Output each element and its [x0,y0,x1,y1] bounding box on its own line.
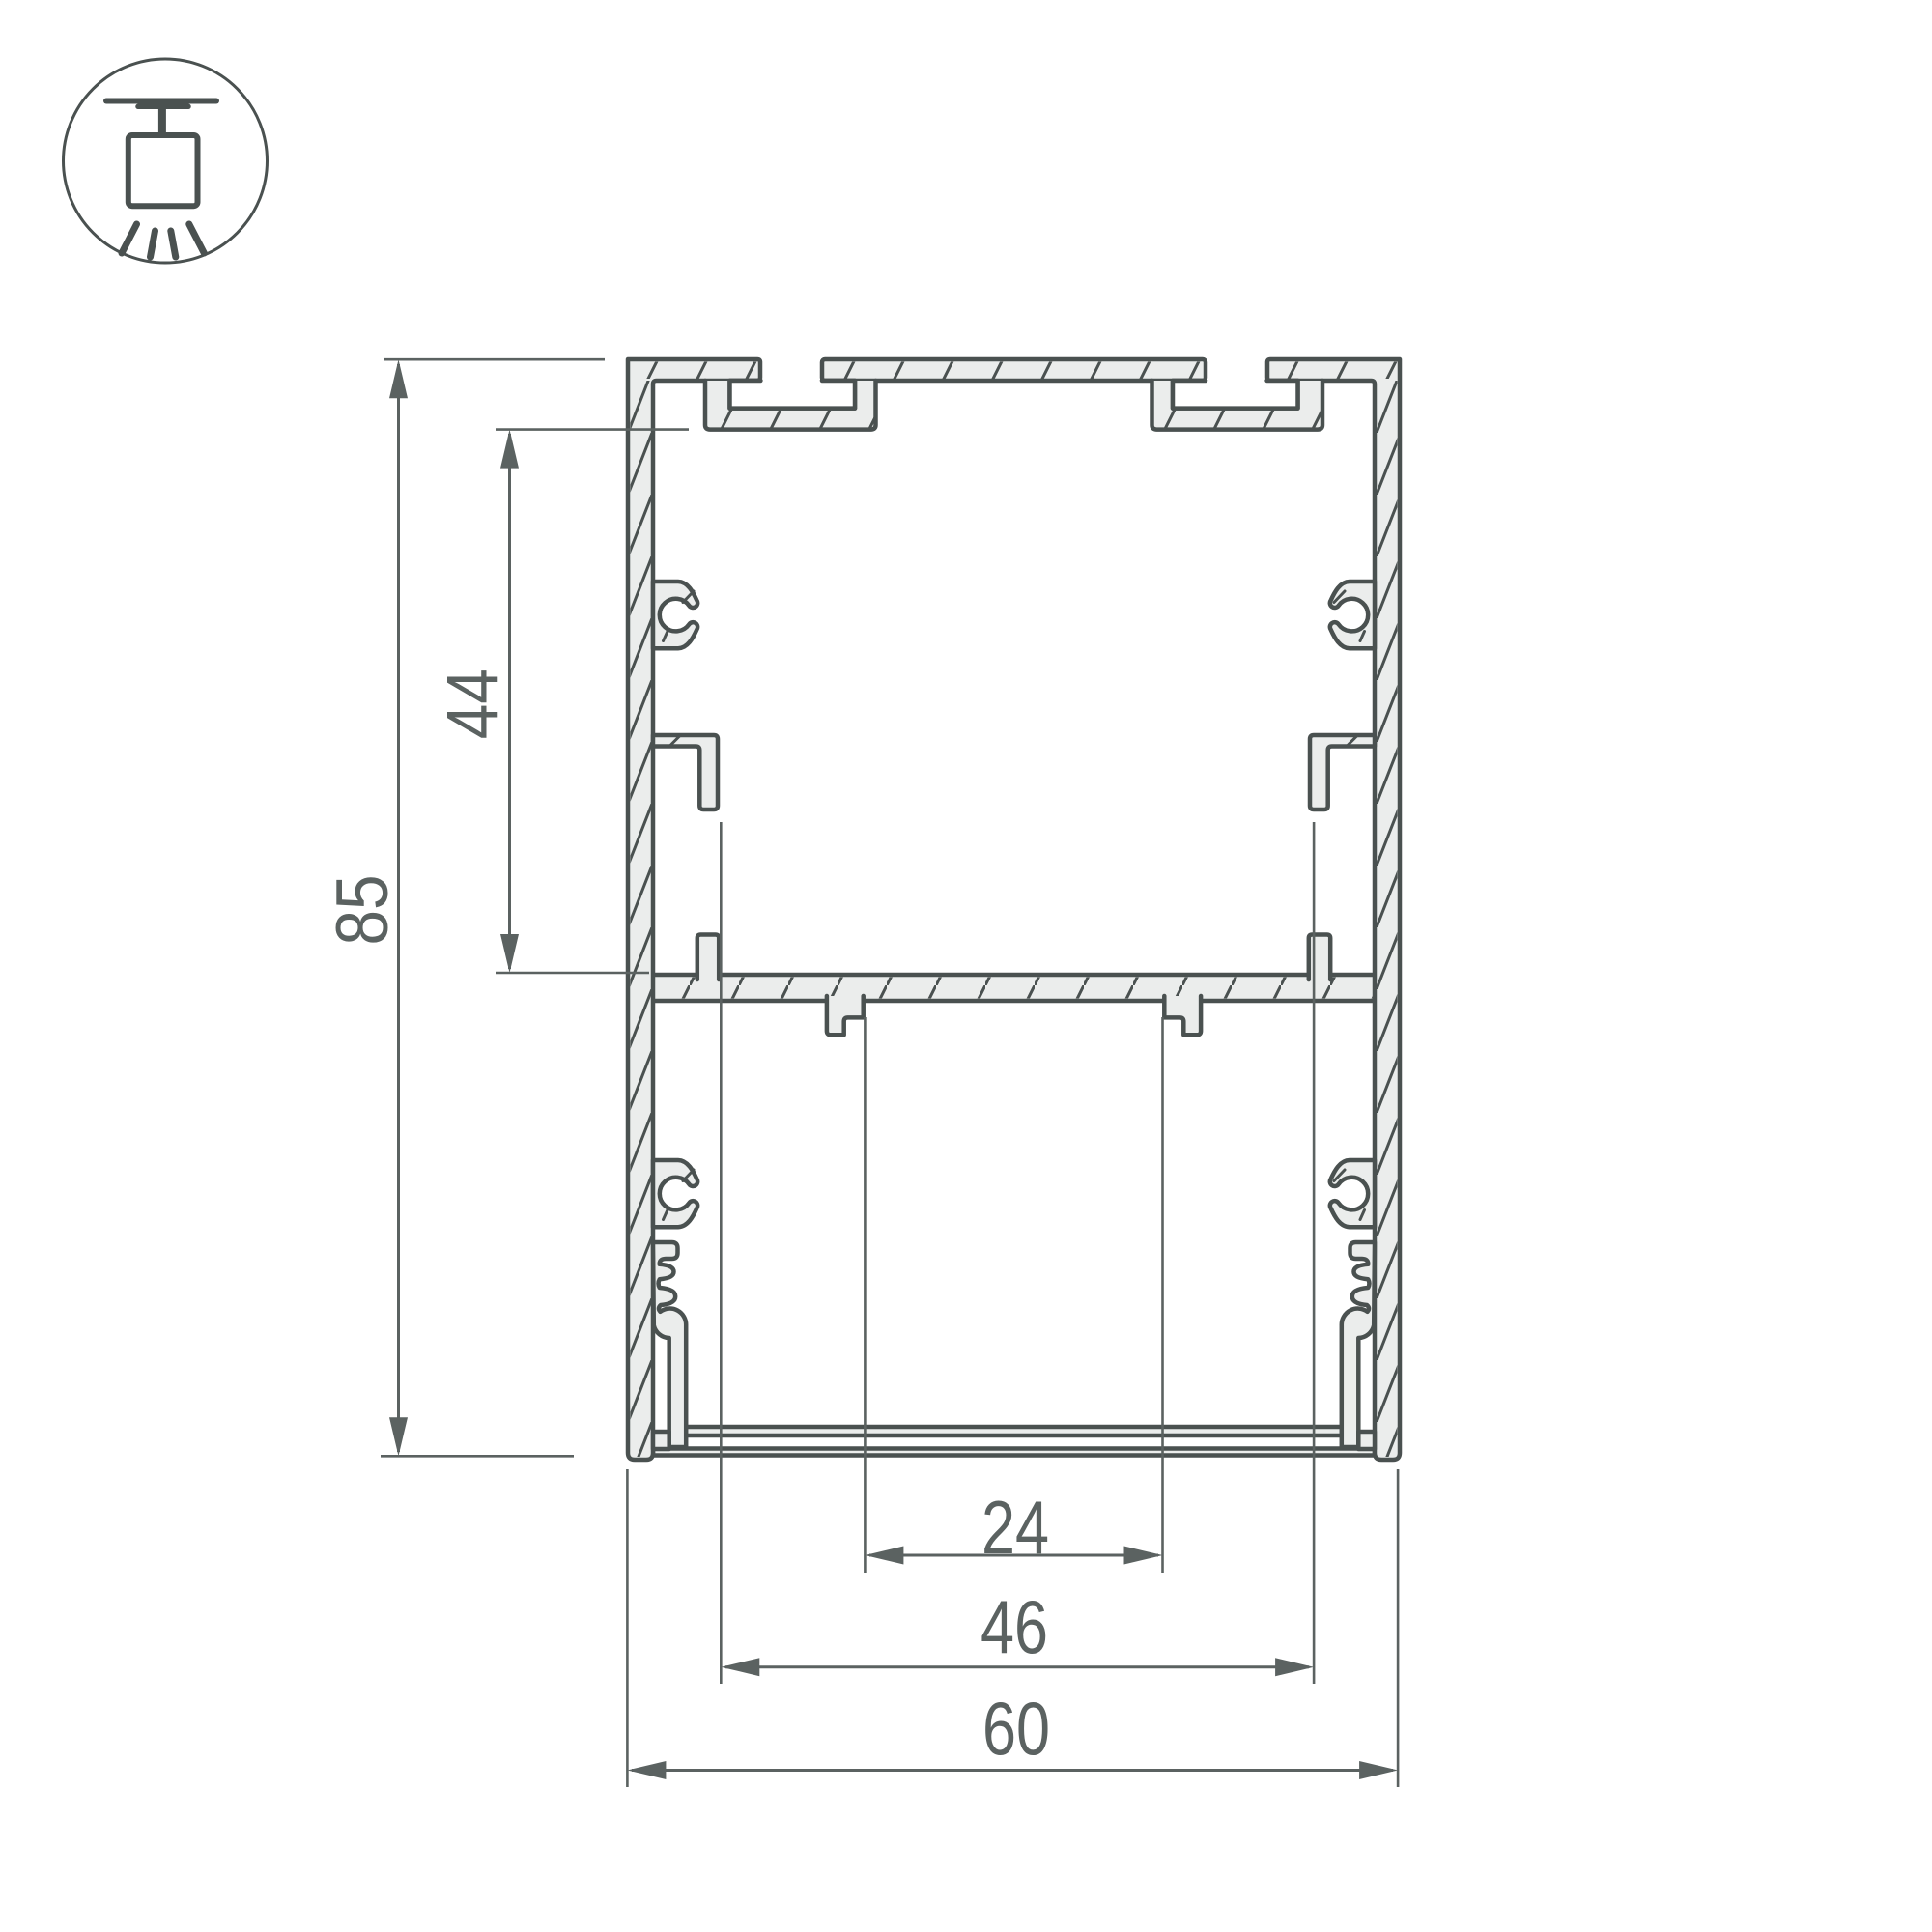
svg-text:24: 24 [981,1485,1049,1570]
svg-text:60: 60 [982,1686,1050,1771]
svg-text:46: 46 [980,1584,1048,1669]
svg-text:44: 44 [433,668,515,739]
svg-text:85: 85 [322,875,404,946]
